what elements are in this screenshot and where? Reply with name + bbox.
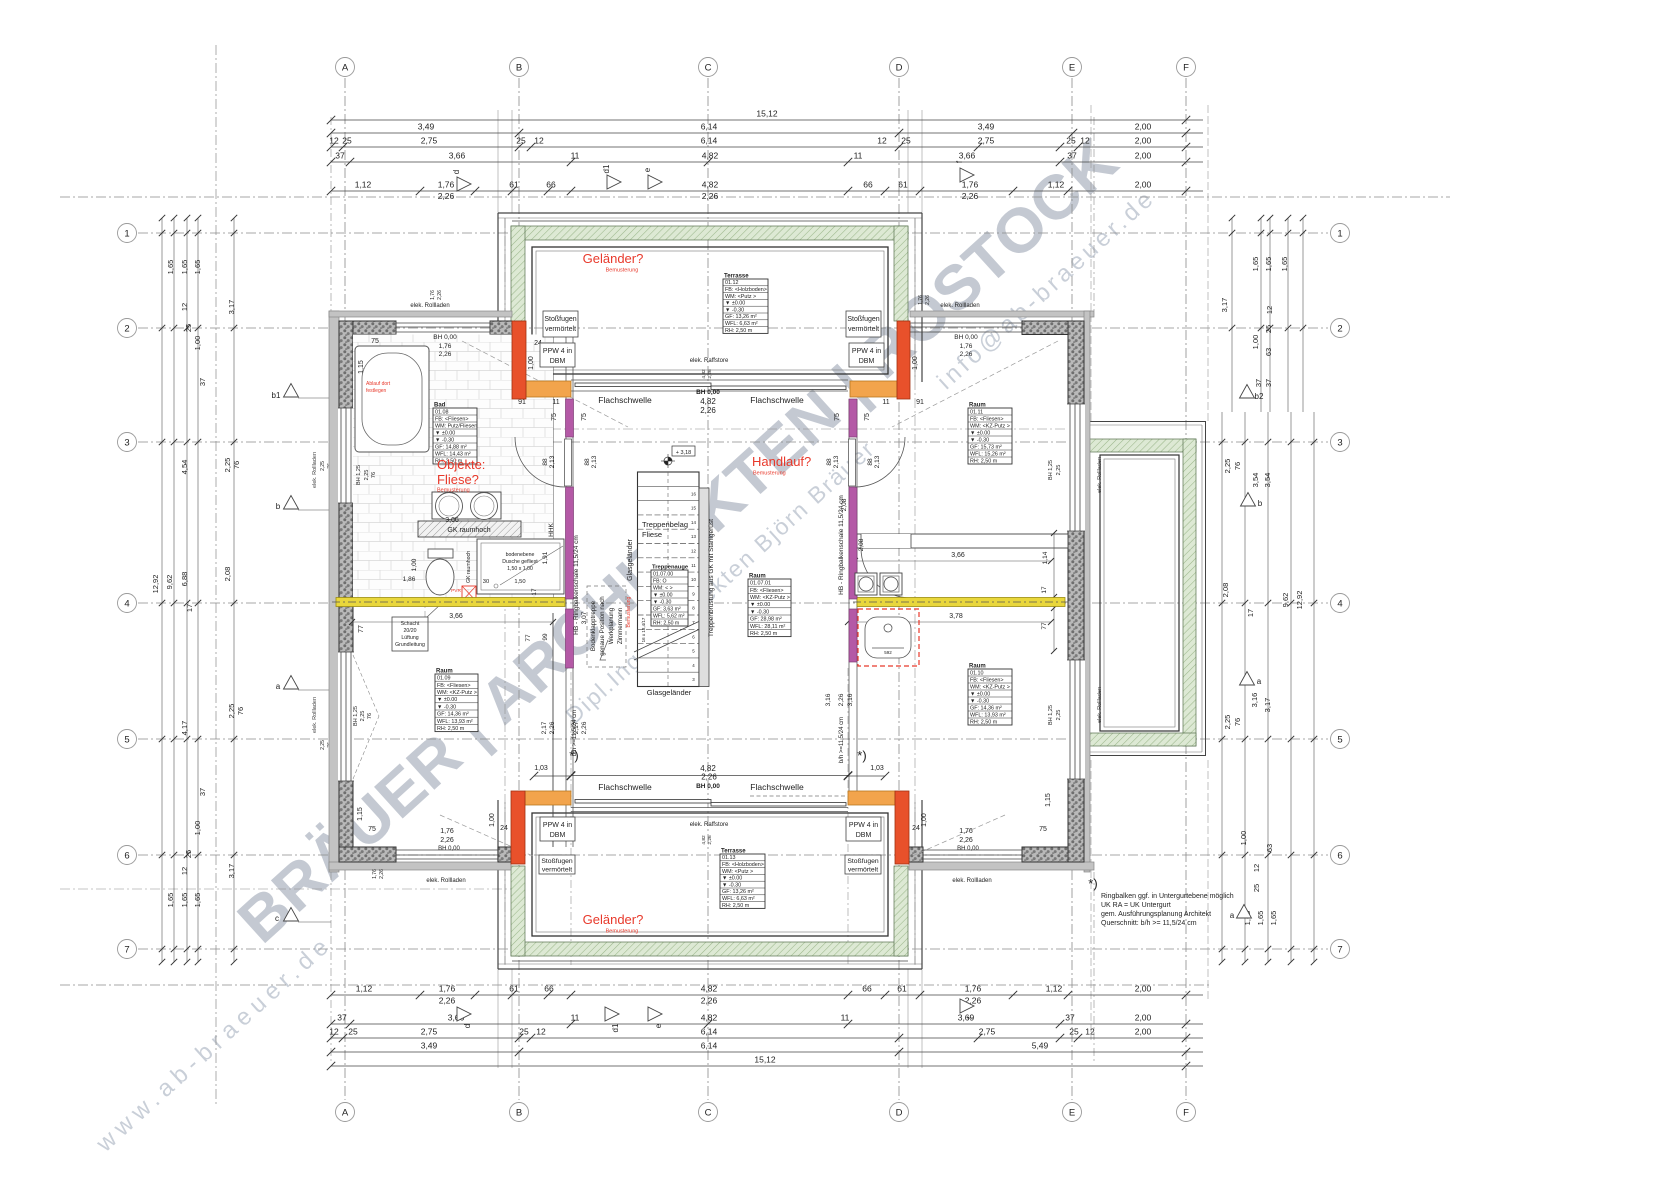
svg-text:2,25: 2,25 <box>223 458 232 473</box>
svg-text:1,15: 1,15 <box>357 807 364 821</box>
svg-text:WFL: 28,11 m²: WFL: 28,11 m² <box>750 624 785 630</box>
svg-text:75: 75 <box>551 413 558 421</box>
svg-text:d1: d1 <box>611 1023 620 1032</box>
svg-text:2,26: 2,26 <box>959 837 973 844</box>
svg-text:1,12: 1,12 <box>1048 180 1065 190</box>
svg-text:2,26: 2,26 <box>960 351 973 358</box>
svg-text:d: d <box>452 170 461 174</box>
svg-text:75: 75 <box>368 826 376 833</box>
svg-text:2,26: 2,26 <box>701 996 718 1006</box>
svg-text:3,66: 3,66 <box>959 151 976 161</box>
svg-text:2,26: 2,26 <box>838 693 845 706</box>
svg-text:elek. Rollladen: elek. Rollladen <box>952 878 991 884</box>
svg-text:4,82: 4,82 <box>701 984 718 994</box>
svg-text:2,25: 2,25 <box>1056 710 1062 721</box>
svg-text:WM: <KZ-Putz >: WM: <KZ-Putz > <box>437 690 477 696</box>
svg-text:1,00: 1,00 <box>193 821 202 836</box>
svg-text:WM: < >: WM: < > <box>653 585 673 591</box>
svg-text:Flachschwelle: Flachschwelle <box>598 782 652 792</box>
svg-text:GF: 14,88 m²: GF: 14,88 m² <box>435 444 467 450</box>
svg-text:Bodenklapptreppe: Bodenklapptreppe <box>590 600 597 651</box>
svg-text:37: 37 <box>198 378 207 386</box>
svg-text:4,82: 4,82 <box>701 1013 718 1023</box>
svg-text:3,49: 3,49 <box>421 1041 438 1051</box>
svg-text:11: 11 <box>571 1013 580 1023</box>
svg-text:2,25: 2,25 <box>1056 465 1062 476</box>
svg-text:61: 61 <box>898 180 908 190</box>
svg-text:▼ ±0.00: ▼ ±0.00 <box>437 697 457 703</box>
svg-text:Bemusterung: Bemusterung <box>753 471 786 477</box>
svg-text:17: 17 <box>1041 586 1048 594</box>
svg-text:2,00: 2,00 <box>1135 136 1152 146</box>
svg-text:Lüftung: Lüftung <box>401 635 418 641</box>
svg-text:A: A <box>342 63 349 74</box>
svg-text:2,25: 2,25 <box>320 461 326 471</box>
svg-text:2,13: 2,13 <box>833 455 840 468</box>
svg-text:e: e <box>654 1023 663 1028</box>
svg-text:▼ ±0.00: ▼ ±0.00 <box>750 602 770 608</box>
svg-text:vermörtelt: vermörtelt <box>848 867 878 874</box>
svg-text:▼ ±0.00: ▼ ±0.00 <box>725 301 745 307</box>
svg-text:37: 37 <box>1264 379 1273 387</box>
svg-text:76: 76 <box>371 472 377 478</box>
svg-text:WM: Putz/Fliesen: WM: Putz/Fliesen <box>435 423 477 429</box>
svg-text:1,15: 1,15 <box>358 360 365 374</box>
svg-text:a: a <box>1257 677 1262 686</box>
svg-text:3: 3 <box>124 438 129 449</box>
svg-text:▼ -0.30: ▼ -0.30 <box>722 882 741 888</box>
svg-text:+ 3,18: + 3,18 <box>676 450 691 456</box>
svg-text:BH 1,25: BH 1,25 <box>1048 705 1054 725</box>
svg-text:14: 14 <box>691 520 696 525</box>
svg-text:2,00: 2,00 <box>1135 984 1152 994</box>
svg-text:61: 61 <box>897 984 907 994</box>
svg-text:2: 2 <box>1337 324 1342 335</box>
svg-text:75: 75 <box>864 413 871 421</box>
svg-text:FB: O: FB: O <box>653 578 667 584</box>
svg-text:RH: 2,50 m: RH: 2,50 m <box>725 328 753 334</box>
svg-text:DBM: DBM <box>550 832 566 839</box>
svg-text:GK raumhoch: GK raumhoch <box>447 527 490 534</box>
svg-text:3,49: 3,49 <box>978 122 995 132</box>
svg-text:GF: 28,98 m²: GF: 28,98 m² <box>750 617 782 623</box>
svg-text:2,26: 2,26 <box>925 295 931 305</box>
svg-text:66: 66 <box>544 984 554 994</box>
svg-text:E: E <box>1069 1108 1075 1119</box>
svg-text:37: 37 <box>1254 379 1263 387</box>
svg-text:PPW 4 in: PPW 4 in <box>543 348 572 355</box>
svg-text:15,12: 15,12 <box>756 109 778 119</box>
svg-text:2,25: 2,25 <box>360 711 366 722</box>
svg-text:BH 0,00: BH 0,00 <box>954 334 978 341</box>
svg-text:2,00: 2,00 <box>1135 180 1152 190</box>
svg-text:PPW 4 in: PPW 4 in <box>849 822 878 829</box>
svg-text:3,66: 3,66 <box>951 552 965 559</box>
svg-text:25: 25 <box>184 324 193 332</box>
svg-text:RH: 2,50 m: RH: 2,50 m <box>970 719 998 725</box>
svg-text:Grundleitung: Grundleitung <box>395 642 425 648</box>
svg-text:UK RA = UK Untergurt: UK RA = UK Untergurt <box>1101 902 1171 909</box>
svg-text:25: 25 <box>516 136 526 146</box>
svg-text:2,26: 2,26 <box>439 996 456 1006</box>
svg-text:2,00: 2,00 <box>1135 151 1152 161</box>
svg-text:25: 25 <box>342 136 352 146</box>
svg-text:3,16: 3,16 <box>847 693 854 706</box>
svg-text:1,76: 1,76 <box>372 869 378 879</box>
svg-text:2,75: 2,75 <box>421 136 438 146</box>
svg-text:91: 91 <box>518 399 526 406</box>
svg-text:vermörtelt: vermörtelt <box>848 326 879 333</box>
svg-text:2,26: 2,26 <box>438 191 455 201</box>
svg-text:1,65: 1,65 <box>1280 257 1289 272</box>
svg-text:12: 12 <box>1085 1027 1095 1037</box>
svg-text:91: 91 <box>916 399 924 406</box>
svg-text:BH 0,00: BH 0,00 <box>696 783 720 790</box>
svg-text:1,65: 1,65 <box>1269 911 1278 926</box>
svg-text:WM: <KZ-Putz >: WM: <KZ-Putz > <box>970 423 1010 429</box>
svg-text:GF: 13,26 m²: GF: 13,26 m² <box>725 314 757 320</box>
svg-text:16 x 18,4/17: 16 x 18,4/17 <box>641 617 646 642</box>
svg-text:festlegen: festlegen <box>366 388 387 394</box>
svg-text:RH: 2,50 m: RH: 2,50 m <box>750 631 778 637</box>
svg-text:2,26: 2,26 <box>581 721 588 734</box>
svg-text:2,26: 2,26 <box>549 721 556 734</box>
svg-text:GF: 3,63 m²: GF: 3,63 m² <box>653 606 681 612</box>
svg-text:76: 76 <box>236 707 245 715</box>
svg-text:HHK: HHK <box>548 522 555 536</box>
svg-text:B: B <box>516 63 522 74</box>
svg-text:12: 12 <box>877 136 887 146</box>
svg-text:1,00: 1,00 <box>921 813 928 827</box>
svg-text:2,25: 2,25 <box>364 470 370 481</box>
svg-text:17: 17 <box>185 604 194 612</box>
svg-text:2,26: 2,26 <box>962 191 979 201</box>
svg-text:11: 11 <box>882 399 889 406</box>
svg-text:2,08: 2,08 <box>858 538 865 551</box>
svg-text:20/20: 20/20 <box>404 628 417 634</box>
svg-text:Geländer?: Geländer? <box>583 251 644 266</box>
svg-text:11: 11 <box>552 399 559 406</box>
svg-text:6,14: 6,14 <box>701 1041 718 1051</box>
svg-text:1,14: 1,14 <box>1042 551 1049 564</box>
svg-text:Bemusterung: Bemusterung <box>606 268 639 274</box>
svg-text:9,62: 9,62 <box>165 575 174 590</box>
svg-text:*): *) <box>1088 876 1097 891</box>
svg-text:1,00: 1,00 <box>912 356 919 370</box>
svg-text:7: 7 <box>1337 945 1342 956</box>
svg-text:d: d <box>463 1024 472 1028</box>
svg-text:e: e <box>643 167 652 172</box>
svg-text:Objekte:: Objekte: <box>437 457 485 472</box>
svg-text:HB - Ringbalkenschale 11,5/24: HB - Ringbalkenschale 11,5/24 cm <box>573 535 580 635</box>
svg-text:▼ ±0.00: ▼ ±0.00 <box>653 592 673 598</box>
svg-text:▼ ±0.00: ▼ ±0.00 <box>970 430 990 436</box>
svg-text:2,75: 2,75 <box>421 1027 438 1037</box>
svg-text:FB: <Fliesen>: FB: <Fliesen> <box>750 588 784 594</box>
svg-text:WFL: 13,93 m²: WFL: 13,93 m² <box>437 719 473 725</box>
svg-text:25: 25 <box>901 136 911 146</box>
svg-text:3,16: 3,16 <box>825 693 832 706</box>
svg-text:11: 11 <box>571 151 580 161</box>
svg-text:3: 3 <box>1337 438 1342 449</box>
svg-text:1,65: 1,65 <box>166 893 175 908</box>
svg-text:2,25: 2,25 <box>1223 715 1232 730</box>
svg-text:2,75: 2,75 <box>978 136 995 146</box>
svg-text:12,92: 12,92 <box>1295 591 1304 610</box>
svg-text:Dusche gefliest: Dusche gefliest <box>502 559 538 565</box>
svg-text:DBM: DBM <box>856 832 872 839</box>
svg-text:37: 37 <box>1065 1013 1075 1023</box>
svg-text:a: a <box>276 682 281 691</box>
svg-text:WFL: 13,93 m²: WFL: 13,93 m² <box>970 712 1006 718</box>
svg-text:BH 0,00: BH 0,00 <box>696 389 720 396</box>
svg-text:RH: 2,50 m: RH: 2,50 m <box>653 620 679 626</box>
svg-text:2,26: 2,26 <box>437 290 443 300</box>
svg-text:01.11: 01.11 <box>970 409 983 415</box>
svg-text:12: 12 <box>329 136 339 146</box>
svg-text:3,16: 3,16 <box>1250 693 1259 708</box>
svg-text:WFL: 6,63 m²: WFL: 6,63 m² <box>722 896 755 902</box>
svg-text:Stoßfugen: Stoßfugen <box>847 316 879 323</box>
svg-text:Stoßfugen: Stoßfugen <box>847 858 879 865</box>
svg-text:2,08: 2,08 <box>841 498 848 511</box>
svg-text:1,65: 1,65 <box>180 893 189 908</box>
svg-text:1,76: 1,76 <box>438 180 455 190</box>
svg-text:b: b <box>276 502 281 511</box>
svg-text:1,00: 1,00 <box>1251 335 1260 350</box>
svg-text:A: A <box>342 1108 349 1119</box>
svg-text:elek. Rollladen: elek. Rollladen <box>312 452 318 488</box>
svg-text:3,66: 3,66 <box>449 151 466 161</box>
svg-text:88: 88 <box>826 458 833 466</box>
svg-text:▼ -0.30: ▼ -0.30 <box>970 437 989 443</box>
svg-text:4,82: 4,82 <box>702 180 719 190</box>
svg-text:2,25: 2,25 <box>1223 459 1232 474</box>
svg-text:▼ -0.30: ▼ -0.30 <box>725 307 744 313</box>
svg-text:12: 12 <box>536 1027 546 1037</box>
svg-text:Ablauf dort: Ablauf dort <box>366 381 391 387</box>
svg-text:GK raumhoch: GK raumhoch <box>466 551 472 583</box>
svg-text:25: 25 <box>184 850 193 858</box>
svg-text:12: 12 <box>1080 136 1090 146</box>
svg-text:2,13: 2,13 <box>591 455 598 468</box>
svg-text:25: 25 <box>519 1027 529 1037</box>
svg-text:2,25: 2,25 <box>320 740 326 750</box>
svg-text:3,17: 3,17 <box>227 300 236 315</box>
svg-text:12: 12 <box>534 136 544 146</box>
svg-text:6: 6 <box>124 851 129 862</box>
svg-text:1,65: 1,65 <box>1251 257 1260 272</box>
svg-text:3,49: 3,49 <box>418 122 435 132</box>
svg-text:Ringbalken ggf. in Untergurteb: Ringbalken ggf. in Untergurtebene möglic… <box>1101 893 1234 900</box>
svg-text:1,86: 1,86 <box>403 576 416 583</box>
svg-text:GF: 14,36 m²: GF: 14,36 m² <box>970 705 1002 711</box>
svg-text:17: 17 <box>531 588 538 596</box>
svg-text:61: 61 <box>509 180 519 190</box>
svg-text:592: 592 <box>884 650 892 655</box>
svg-text:PPW 4 in: PPW 4 in <box>852 348 881 355</box>
svg-text:1,76: 1,76 <box>439 984 456 994</box>
svg-text:1,50: 1,50 <box>514 579 525 585</box>
svg-text:77: 77 <box>358 625 365 633</box>
svg-text:01.13: 01.13 <box>722 855 736 861</box>
svg-text:76: 76 <box>1233 462 1242 470</box>
svg-text:Querschnitt: b/h >= 11,5/24 cm: Querschnitt: b/h >= 11,5/24 cm <box>1101 920 1197 927</box>
svg-text:BH 0,00: BH 0,00 <box>957 846 979 852</box>
svg-text:1,65: 1,65 <box>1256 911 1265 926</box>
svg-text:63: 63 <box>1264 348 1273 356</box>
svg-text:Werkplanung: Werkplanung <box>608 607 615 644</box>
svg-text:Zimmermann: Zimmermann <box>617 607 624 644</box>
svg-text:RH: 2,50 m: RH: 2,50 m <box>437 726 465 732</box>
svg-text:2,13: 2,13 <box>549 455 556 468</box>
svg-text:3,66: 3,66 <box>449 613 463 620</box>
svg-text:1,76: 1,76 <box>918 295 924 305</box>
svg-text:76: 76 <box>1233 718 1242 726</box>
svg-text:5: 5 <box>1337 735 1342 746</box>
svg-text:Treppenbelag: Treppenbelag <box>642 520 688 529</box>
svg-text:DBM: DBM <box>550 358 566 365</box>
svg-text:1,76: 1,76 <box>959 828 973 835</box>
svg-text:1,76: 1,76 <box>965 984 982 994</box>
svg-text:4,17: 4,17 <box>180 721 189 736</box>
svg-text:WFL: 6,63 m²: WFL: 6,63 m² <box>725 321 758 327</box>
svg-text:12: 12 <box>329 1027 339 1037</box>
svg-text:elek. Rollladen: elek. Rollladen <box>426 878 465 884</box>
svg-text:E: E <box>1069 63 1075 74</box>
svg-text:▼ ±0.00: ▼ ±0.00 <box>435 430 455 436</box>
svg-text:5: 5 <box>124 735 129 746</box>
svg-text:Bemusterung: Bemusterung <box>606 929 639 935</box>
svg-text:B: B <box>516 1108 522 1119</box>
svg-text:WFL: 15,26 m²: WFL: 15,26 m² <box>970 451 1006 457</box>
svg-text:25: 25 <box>1069 1027 1079 1037</box>
svg-text:1,15: 1,15 <box>1045 793 1052 807</box>
svg-text:PVR: PVR <box>451 588 461 594</box>
svg-text:GF: 13,26 m²: GF: 13,26 m² <box>722 889 754 895</box>
svg-text:12: 12 <box>1265 306 1274 314</box>
svg-text:2,26: 2,26 <box>700 406 716 415</box>
svg-text:Handlauf?: Handlauf? <box>752 454 811 469</box>
svg-text:25: 25 <box>1252 884 1261 892</box>
svg-text:Treppenbrüstung aus GK mit Sta: Treppenbrüstung aus GK mit Stahlgerüst <box>708 519 715 637</box>
svg-text:FB: <Fliesen>: FB: <Fliesen> <box>437 683 471 689</box>
svg-text:12,92: 12,92 <box>151 575 160 594</box>
svg-text:2,26: 2,26 <box>379 869 385 879</box>
svg-text:01.07.00: 01.07.00 <box>653 571 673 577</box>
svg-text:6: 6 <box>1337 851 1342 862</box>
svg-text:▼ -0.30: ▼ -0.30 <box>437 704 456 710</box>
svg-text:Fliese?: Fliese? <box>437 472 479 487</box>
svg-text:b/h >=11,5/24 cm: b/h >=11,5/24 cm <box>572 710 578 756</box>
svg-text:FB: <Fliesen>: FB: <Fliesen> <box>970 416 1004 422</box>
svg-text:25: 25 <box>1066 136 1076 146</box>
svg-text:77: 77 <box>1041 622 1048 630</box>
svg-text:25: 25 <box>1264 325 1273 333</box>
svg-text:4,54: 4,54 <box>180 460 189 475</box>
svg-text:3,54: 3,54 <box>1251 473 1260 488</box>
svg-text:1,65: 1,65 <box>166 260 175 275</box>
svg-text:2,26: 2,26 <box>439 351 452 358</box>
svg-text:3,54: 3,54 <box>1263 473 1272 488</box>
svg-text:RH: 2,50 m: RH: 2,50 m <box>722 903 750 909</box>
svg-text:25: 25 <box>348 1027 358 1037</box>
svg-text:99: 99 <box>542 633 549 641</box>
svg-text:1,76: 1,76 <box>440 828 454 835</box>
svg-text:77: 77 <box>525 634 532 642</box>
svg-text:Glasgeländer: Glasgeländer <box>627 539 634 581</box>
svg-text:9,62: 9,62 <box>1281 593 1290 608</box>
svg-text:C: C <box>705 1108 712 1119</box>
svg-text:4,82: 4,82 <box>701 369 707 379</box>
svg-text:C: C <box>705 63 712 74</box>
svg-text:1,12: 1,12 <box>1046 984 1063 994</box>
svg-text:FB: <Fliesen>: FB: <Fliesen> <box>435 416 469 422</box>
svg-text:▼ -0.30: ▼ -0.30 <box>653 599 672 605</box>
svg-text:D: D <box>896 1108 903 1119</box>
svg-text:66: 66 <box>546 180 556 190</box>
svg-text:PPW 4 in: PPW 4 in <box>543 822 572 829</box>
svg-text:1,76: 1,76 <box>960 343 973 350</box>
svg-text:▼ ±0.00: ▼ ±0.00 <box>722 876 742 882</box>
svg-text:1,76: 1,76 <box>439 343 452 350</box>
svg-text:1,65: 1,65 <box>193 260 202 275</box>
svg-text:▼ ±0.00: ▼ ±0.00 <box>970 691 990 697</box>
svg-text:elek. Raffstore: elek. Raffstore <box>690 358 729 364</box>
svg-text:4,82: 4,82 <box>702 151 719 161</box>
svg-text:37: 37 <box>335 151 345 161</box>
svg-text:2,26: 2,26 <box>707 835 713 845</box>
svg-text:vermörtelt: vermörtelt <box>542 867 572 874</box>
svg-text:F: F <box>1183 1108 1189 1119</box>
svg-text:▼ -0.30: ▼ -0.30 <box>435 437 454 443</box>
svg-text:2,75: 2,75 <box>979 1027 996 1037</box>
svg-text:2: 2 <box>124 324 129 335</box>
svg-text:1,03: 1,03 <box>870 765 884 772</box>
svg-text:1,76: 1,76 <box>962 180 979 190</box>
svg-text:12: 12 <box>180 867 189 875</box>
svg-text:2,17: 2,17 <box>541 721 548 734</box>
svg-text:01.10: 01.10 <box>970 670 984 676</box>
svg-text:75: 75 <box>834 413 841 421</box>
svg-text:b1: b1 <box>272 391 281 400</box>
svg-text:1,03: 1,03 <box>534 765 548 772</box>
svg-text:75: 75 <box>1039 826 1047 833</box>
svg-text:BH 1,25: BH 1,25 <box>1048 460 1054 480</box>
svg-text:37: 37 <box>198 788 207 796</box>
svg-text:gem. Ausführungsplanung Archit: gem. Ausführungsplanung Architekt <box>1101 911 1211 918</box>
svg-text:1,00: 1,00 <box>489 813 496 827</box>
svg-text:elek. Raffstore: elek. Raffstore <box>690 822 729 828</box>
svg-text:RH: 2,50 m: RH: 2,50 m <box>970 458 998 464</box>
svg-text:Geländer?: Geländer? <box>583 912 644 927</box>
svg-text:4: 4 <box>1337 599 1342 610</box>
svg-text:11: 11 <box>854 151 863 161</box>
svg-text:1,65: 1,65 <box>1264 257 1273 272</box>
svg-text:FB: <Holzboden>: FB: <Holzboden> <box>722 862 764 868</box>
svg-text:88: 88 <box>584 458 591 466</box>
svg-text:BH 1,25: BH 1,25 <box>353 706 359 726</box>
svg-text:b: b <box>1258 499 1263 508</box>
svg-text:13: 13 <box>691 534 696 539</box>
svg-text:BH 0,00: BH 0,00 <box>438 846 460 852</box>
svg-text:1,12: 1,12 <box>356 984 373 994</box>
svg-text:d1: d1 <box>602 164 611 173</box>
svg-text:1,00: 1,00 <box>411 558 418 571</box>
svg-text:Stoßfugen: Stoßfugen <box>541 858 573 865</box>
svg-text:*): *) <box>857 748 866 763</box>
svg-text:1: 1 <box>1337 229 1342 240</box>
